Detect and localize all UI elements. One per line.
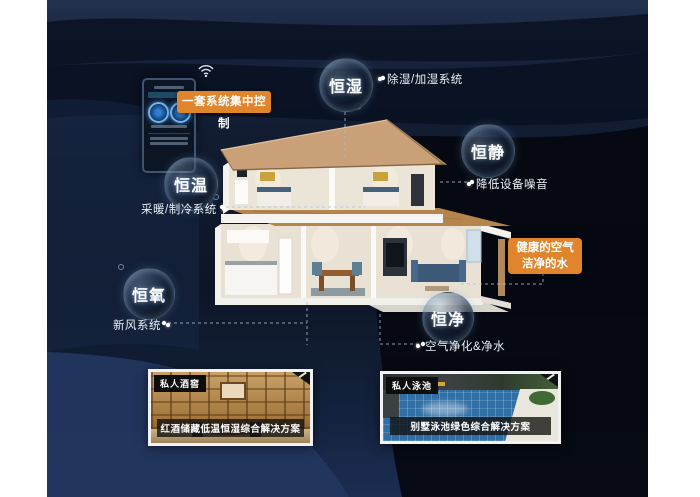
bubble-hengjin: 恒净	[422, 292, 474, 344]
note-text: 空气净化&净水	[425, 338, 505, 354]
pool-side-wall	[383, 390, 399, 418]
note-hengwen: 采暖/制冷系统	[141, 201, 226, 217]
note-text: 采暖/制冷系统	[141, 201, 217, 217]
connector-dot	[222, 207, 226, 211]
kitchen-fridge	[279, 238, 292, 294]
wall-art-left	[260, 172, 275, 181]
wifi-icon	[197, 61, 215, 77]
lower-window	[467, 230, 481, 262]
bubble-hengjing: 恒静	[461, 124, 515, 178]
connector-dot	[467, 182, 471, 186]
bubble-hengshi: 恒湿	[319, 58, 373, 112]
note-hengjing: 降低设备噪音	[467, 176, 548, 192]
wine-card-badge: 私人酒窖	[154, 375, 206, 392]
pool-card-caption: 别墅泳池绿色综合解决方案	[390, 417, 551, 435]
card-pool: 私人泳池 别墅泳池绿色综合解决方案	[380, 371, 561, 444]
connector-dot	[378, 77, 382, 81]
dial-icon	[148, 102, 169, 123]
note-hengjin: 空气净化&净水	[416, 338, 505, 354]
bedroom-tv-left	[237, 170, 247, 177]
living-sofa	[415, 264, 459, 282]
connector-dot	[166, 323, 170, 327]
living-tv	[386, 243, 404, 267]
highlight-line1: 健康的空气	[508, 240, 582, 256]
highlight-box: 健康的空气 洁净的水	[508, 238, 582, 274]
bed-left	[257, 192, 291, 206]
wine-card-caption: 红酒储藏低温恒湿综合解决方案	[157, 419, 303, 437]
note-hengyang: 新风系统	[113, 317, 170, 333]
connector-dot	[416, 344, 420, 348]
bedroom-tv-right	[411, 174, 424, 206]
porch-canopy	[481, 224, 511, 239]
pool-card-badge: 私人泳池	[386, 377, 438, 394]
roof-slope	[221, 120, 443, 170]
kitchen-base-cabinets	[225, 265, 277, 295]
note-text: 除湿/加湿系统	[387, 71, 463, 87]
note-text: 新风系统	[113, 317, 161, 333]
card-wine-cellar: 私人酒窖 红酒储藏低温恒湿综合解决方案	[148, 369, 313, 446]
note-text: 降低设备噪音	[476, 176, 548, 192]
porch-column	[498, 239, 505, 296]
phone-status-bar	[154, 86, 185, 89]
bed-right	[363, 192, 399, 206]
pool-water-glare	[422, 402, 468, 416]
kitchen-counter	[225, 261, 277, 265]
poster-stage: 一套系统集中控制 恒湿 恒静 恒温 恒氧 恒净 除湿/加湿系统 降低设备噪音 采…	[47, 0, 648, 497]
bubble-hengyang: 恒氧	[123, 268, 175, 320]
note-hengshi: 除湿/加湿系统	[378, 71, 463, 87]
highlight-line2: 洁净的水	[508, 256, 582, 272]
wall-art-right	[373, 172, 388, 181]
kitchen-upper-cabinets	[227, 230, 269, 243]
control-label: 一套系统集中控制	[177, 91, 271, 113]
wine-frame-art	[220, 382, 246, 400]
